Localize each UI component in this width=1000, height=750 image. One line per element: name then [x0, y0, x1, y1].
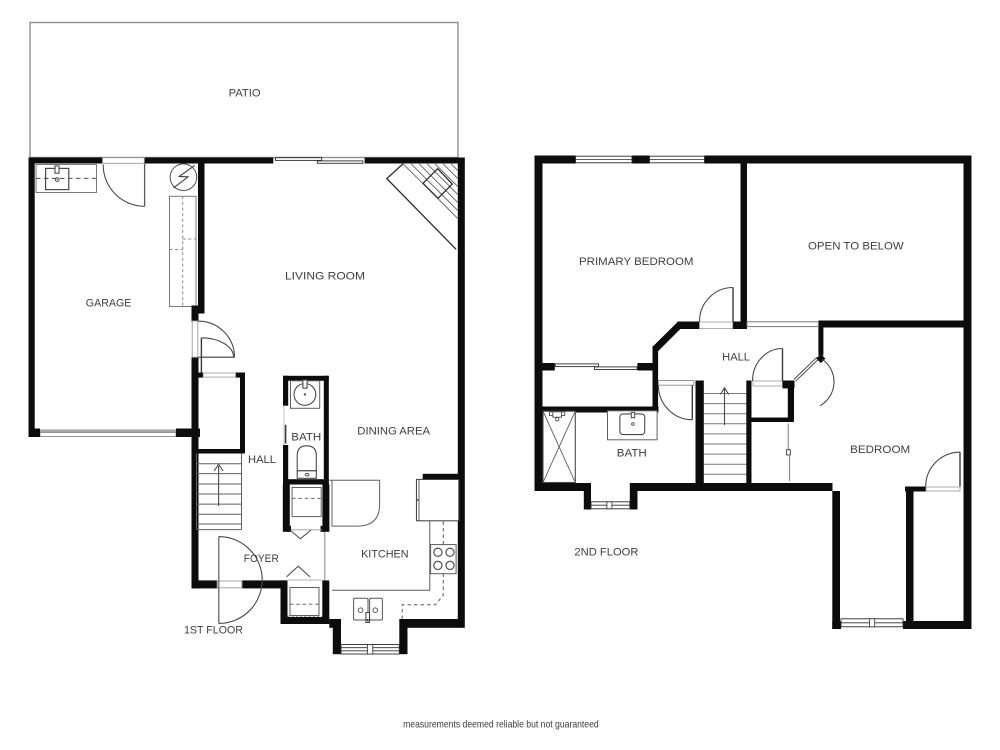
svg-text:PATIO: PATIO [229, 87, 261, 99]
svg-text:GARAGE: GARAGE [86, 298, 132, 310]
svg-text:PRIMARY BEDROOM: PRIMARY BEDROOM [579, 256, 694, 268]
svg-text:OPEN TO BELOW: OPEN TO BELOW [808, 241, 904, 253]
svg-text:1ST FLOOR: 1ST FLOOR [184, 624, 243, 636]
svg-text:HALL: HALL [722, 352, 750, 364]
svg-text:BATH: BATH [291, 432, 321, 444]
svg-text:DINING AREA: DINING AREA [357, 425, 430, 437]
svg-text:BEDROOM: BEDROOM [850, 444, 910, 456]
svg-text:HALL: HALL [248, 454, 276, 466]
svg-text:LIVING ROOM: LIVING ROOM [285, 270, 365, 282]
svg-text:FOYER: FOYER [244, 553, 279, 565]
svg-text:BATH: BATH [617, 448, 647, 460]
svg-text:2ND FLOOR: 2ND FLOOR [574, 547, 638, 559]
svg-text:KITCHEN: KITCHEN [361, 549, 409, 561]
svg-text:measurements deemed reliable b: measurements deemed reliable but not gua… [403, 718, 599, 730]
